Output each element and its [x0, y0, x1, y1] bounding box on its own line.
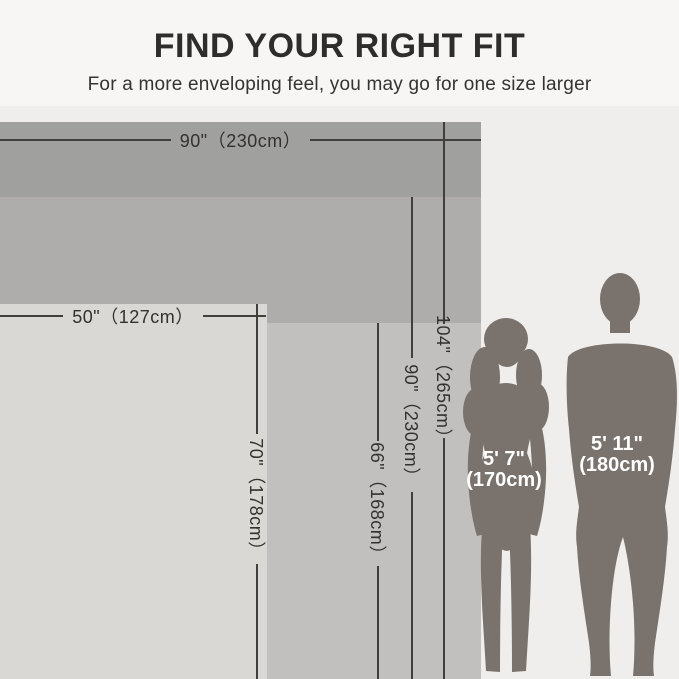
dimension-line	[411, 492, 413, 679]
woman-height-cm: (170cm)	[466, 470, 542, 491]
page-title: FIND YOUR RIGHT FIT	[0, 27, 679, 66]
man-height-ft: 5' 11"	[579, 434, 655, 455]
dimension-line	[310, 139, 481, 141]
dimension-line	[443, 438, 445, 679]
man-height-label: 5' 11" (180cm)	[579, 434, 655, 476]
dimension-line	[377, 323, 379, 441]
height-label-66in: 66"（168cm）	[365, 442, 391, 563]
dimension-line	[377, 566, 379, 679]
dimension-line	[411, 197, 413, 358]
width-label-50in: 50"（127cm）	[63, 303, 202, 329]
page-subtitle: For a more enveloping feel, you may go f…	[0, 74, 679, 96]
woman-silhouette	[450, 317, 556, 679]
height-label-70in: 70"（178cm）	[244, 438, 270, 559]
height-label-90in: 90"（230cm）	[399, 364, 425, 485]
dimension-line	[256, 564, 258, 679]
width-label-90in: 90"（230cm）	[171, 127, 310, 153]
woman-height-ft: 5' 7"	[466, 449, 542, 470]
dimension-line	[0, 315, 63, 317]
width-dimension-90in: 90"（230cm）	[0, 130, 481, 150]
dimension-line	[0, 139, 171, 141]
size-rect-50x70	[0, 304, 267, 679]
width-dimension-50in: 50"（127cm）	[0, 306, 266, 326]
size-fit-chart: FIND YOUR RIGHT FIT For a more envelopin…	[0, 0, 679, 679]
woman-figure-icon	[450, 317, 556, 679]
dimension-line	[256, 304, 258, 434]
man-height-cm: (180cm)	[579, 455, 655, 476]
dimension-line	[443, 122, 445, 324]
woman-height-label: 5' 7" (170cm)	[466, 449, 542, 491]
